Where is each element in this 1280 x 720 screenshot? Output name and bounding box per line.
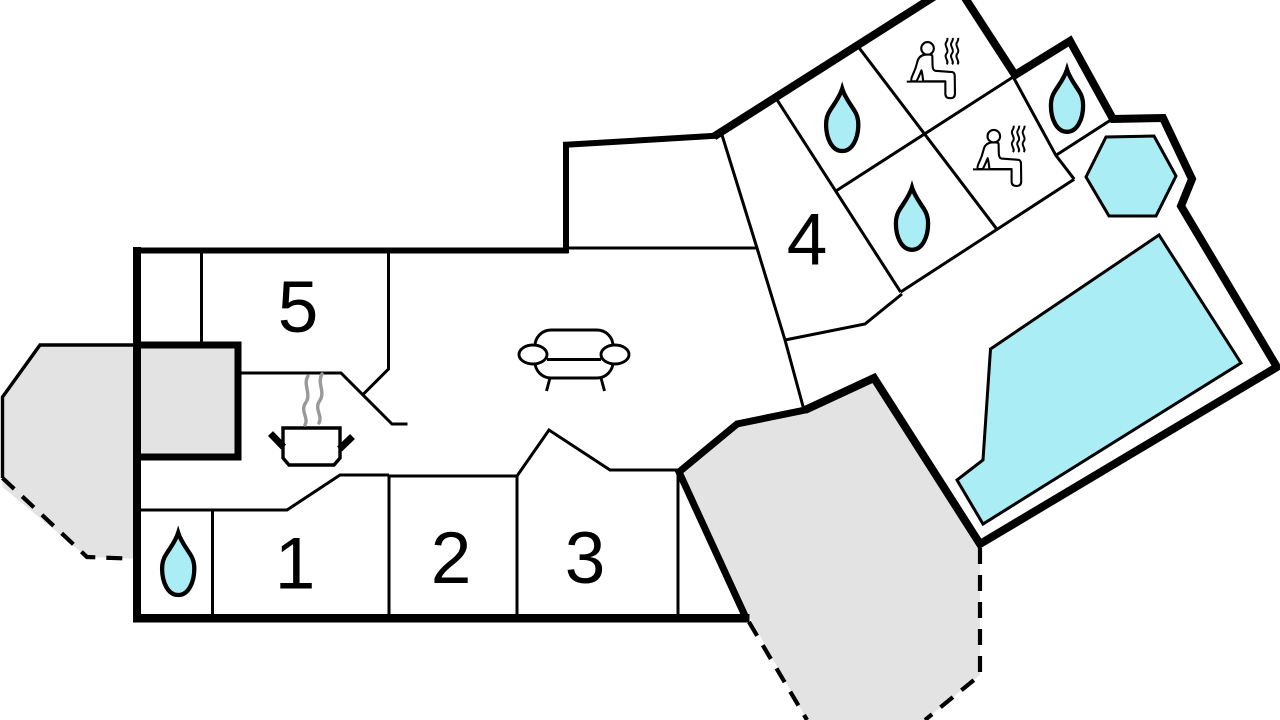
svg-text:5: 5	[278, 267, 319, 348]
svg-text:1: 1	[275, 524, 316, 605]
svg-text:2: 2	[431, 518, 472, 599]
svg-text:3: 3	[565, 518, 606, 599]
svg-text:4: 4	[787, 200, 828, 281]
